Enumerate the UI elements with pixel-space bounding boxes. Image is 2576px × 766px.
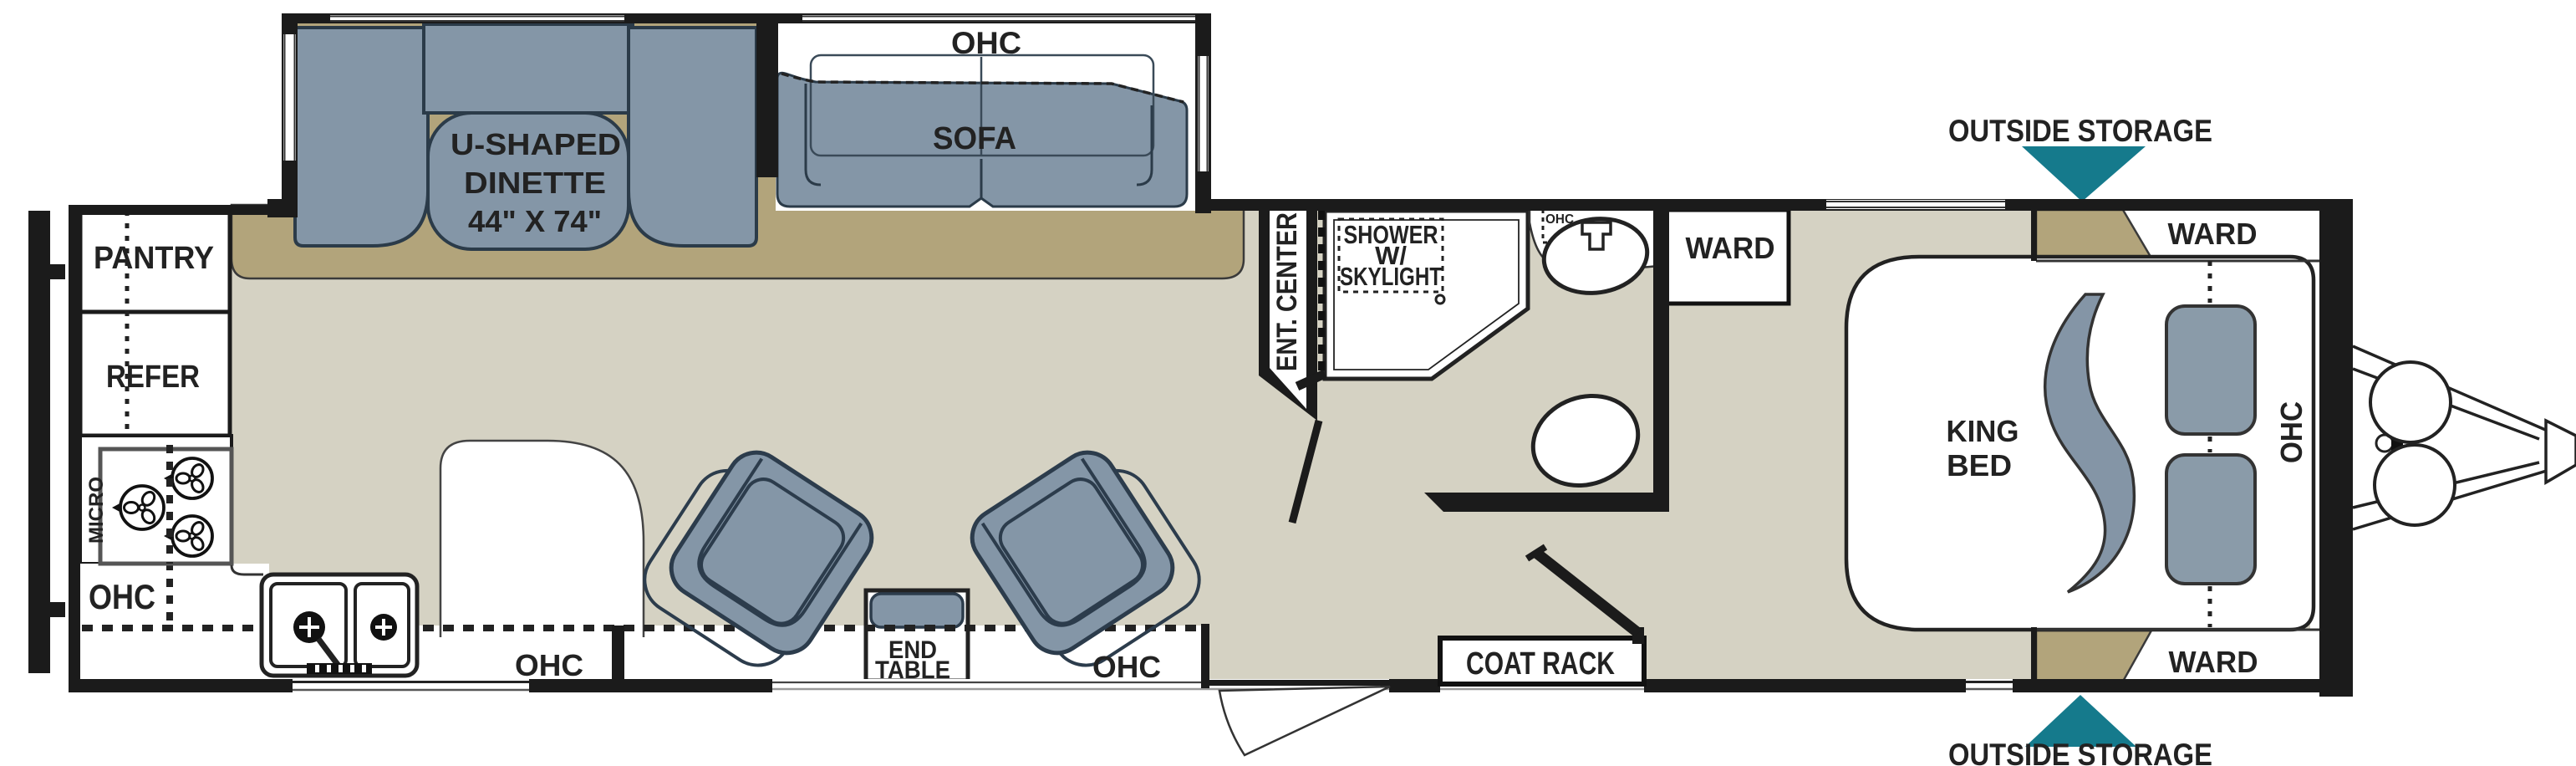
svg-text:BED: BED — [1947, 448, 2012, 483]
svg-text:OUTSIDE STORAGE: OUTSIDE STORAGE — [1948, 114, 2212, 148]
svg-text:OHC: OHC — [89, 577, 155, 616]
svg-text:KING: KING — [1947, 414, 2019, 448]
svg-text:OUTSIDE STORAGE: OUTSIDE STORAGE — [1948, 738, 2212, 766]
svg-text:OHC: OHC — [515, 648, 583, 682]
svg-text:MICRO: MICRO — [85, 477, 108, 544]
svg-text:OHC: OHC — [2274, 401, 2309, 463]
svg-text:COAT RACK: COAT RACK — [1466, 646, 1615, 682]
svg-text:U-SHAPED: U-SHAPED — [451, 127, 621, 161]
svg-text:REFER: REFER — [106, 360, 200, 395]
svg-text:DINETTE: DINETTE — [464, 166, 606, 200]
svg-text:WARD: WARD — [2168, 217, 2258, 251]
svg-text:OHC: OHC — [1092, 650, 1161, 684]
svg-text:SKYLIGHT: SKYLIGHT — [1340, 262, 1442, 291]
svg-text:PANTRY: PANTRY — [94, 241, 214, 276]
svg-text:WARD: WARD — [1686, 231, 1775, 265]
svg-text:ENT. CENTER: ENT. CENTER — [1271, 212, 1303, 371]
svg-text:SOFA: SOFA — [933, 121, 1016, 156]
svg-text:WARD: WARD — [2169, 645, 2258, 679]
svg-text:44" X 74": 44" X 74" — [468, 204, 602, 238]
